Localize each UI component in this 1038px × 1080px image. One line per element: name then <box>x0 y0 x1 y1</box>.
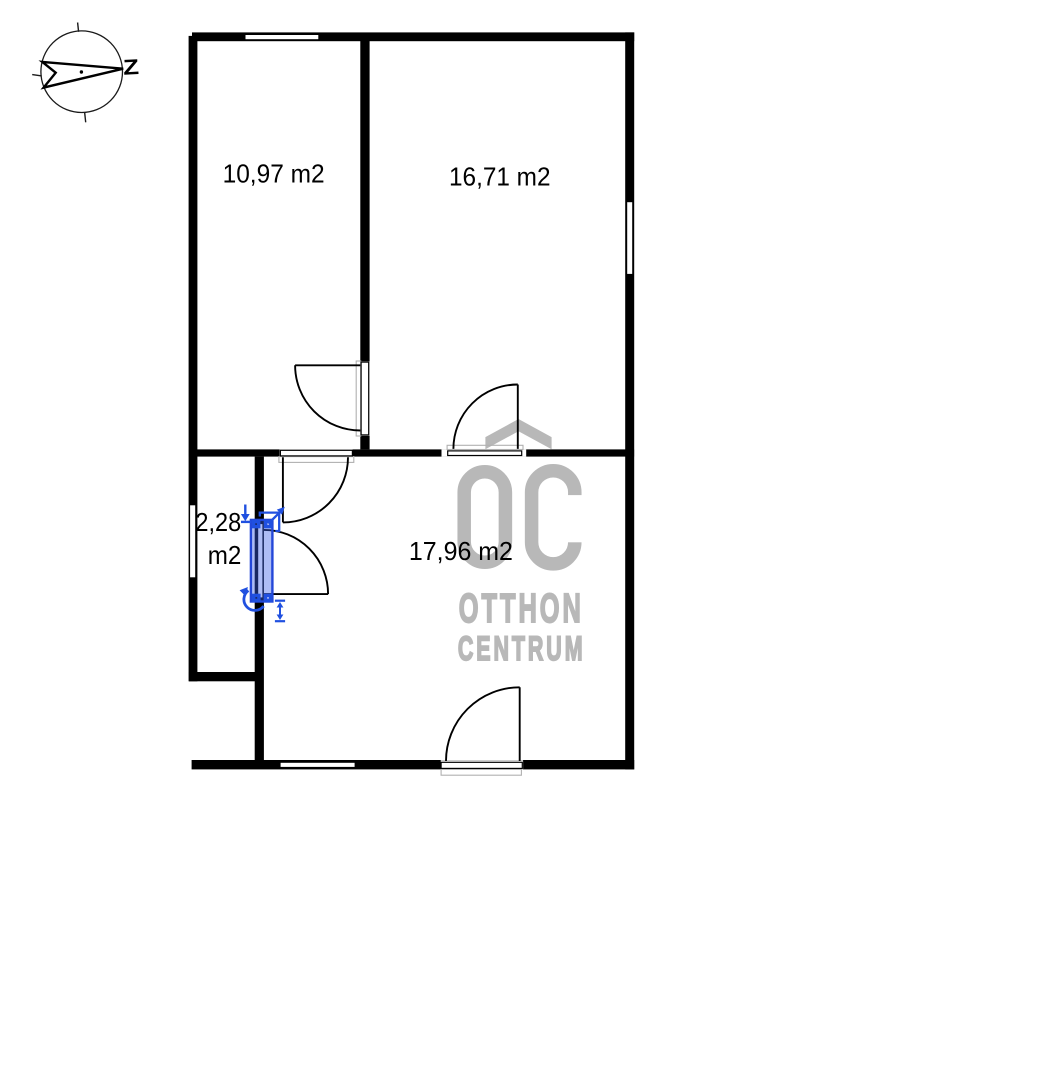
svg-text:16,71 m2: 16,71 m2 <box>449 161 551 191</box>
svg-text:10,97 m2: 10,97 m2 <box>223 159 325 189</box>
svg-text:2,28: 2,28 <box>195 507 241 537</box>
svg-text:OTTHON: OTTHON <box>459 586 584 632</box>
svg-text:m2: m2 <box>208 540 242 570</box>
svg-text:17,96 m2: 17,96 m2 <box>409 536 513 566</box>
svg-text:Z: Z <box>123 55 140 80</box>
svg-text:CENTRUM: CENTRUM <box>458 630 586 668</box>
